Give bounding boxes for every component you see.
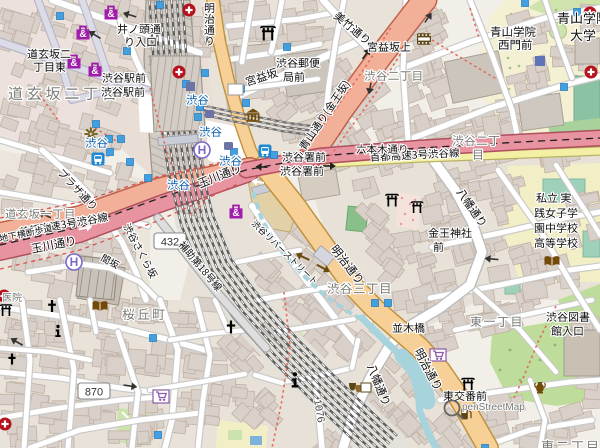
svg-text:&: & [232,208,239,219]
svg-text:&: & [91,66,98,77]
svg-text:&: & [79,29,86,40]
svg-text:&: & [70,58,77,69]
svg-text:870: 870 [85,387,103,399]
svg-text:&: & [107,9,114,20]
svg-text:H: H [70,255,79,269]
svg-text:penStreetMap: penStreetMap [462,402,525,413]
svg-text:H: H [198,143,207,157]
svg-text:432: 432 [161,237,179,249]
